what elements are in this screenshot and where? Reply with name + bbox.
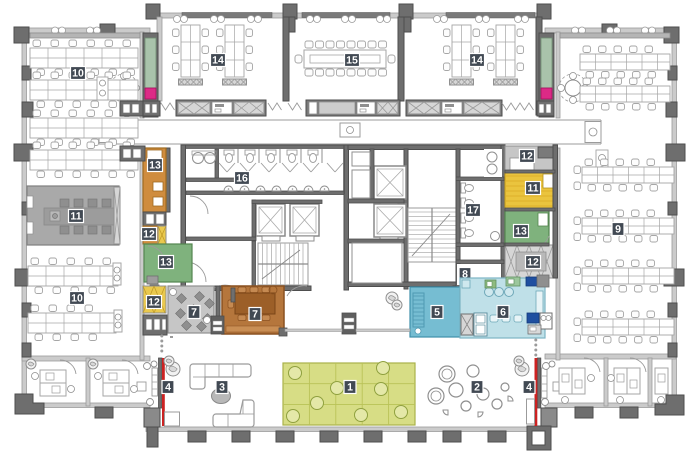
svg-text:11: 11 — [70, 210, 81, 222]
svg-text:12: 12 — [148, 296, 160, 308]
svg-text:6: 6 — [500, 306, 506, 318]
svg-text:11: 11 — [527, 182, 538, 194]
svg-text:14: 14 — [471, 54, 483, 66]
svg-text:14: 14 — [212, 54, 224, 66]
svg-text:4: 4 — [165, 381, 171, 393]
svg-text:10: 10 — [72, 67, 84, 79]
svg-text:3: 3 — [219, 381, 225, 393]
svg-text:13: 13 — [515, 225, 527, 237]
svg-text:4: 4 — [526, 381, 532, 393]
svg-text:2: 2 — [474, 381, 480, 393]
svg-text:9: 9 — [615, 223, 621, 235]
svg-text:12: 12 — [521, 150, 533, 162]
svg-text:10: 10 — [71, 292, 83, 304]
svg-text:12: 12 — [143, 228, 155, 240]
svg-text:1: 1 — [347, 381, 353, 393]
svg-text:7: 7 — [191, 306, 197, 318]
svg-text:7: 7 — [252, 308, 258, 320]
svg-text:15: 15 — [346, 54, 358, 66]
svg-text:16: 16 — [236, 172, 248, 184]
svg-text:13: 13 — [160, 256, 172, 268]
svg-text:17: 17 — [467, 204, 479, 216]
svg-text:12: 12 — [527, 256, 539, 268]
svg-text:13: 13 — [149, 159, 161, 171]
svg-text:5: 5 — [434, 306, 440, 318]
